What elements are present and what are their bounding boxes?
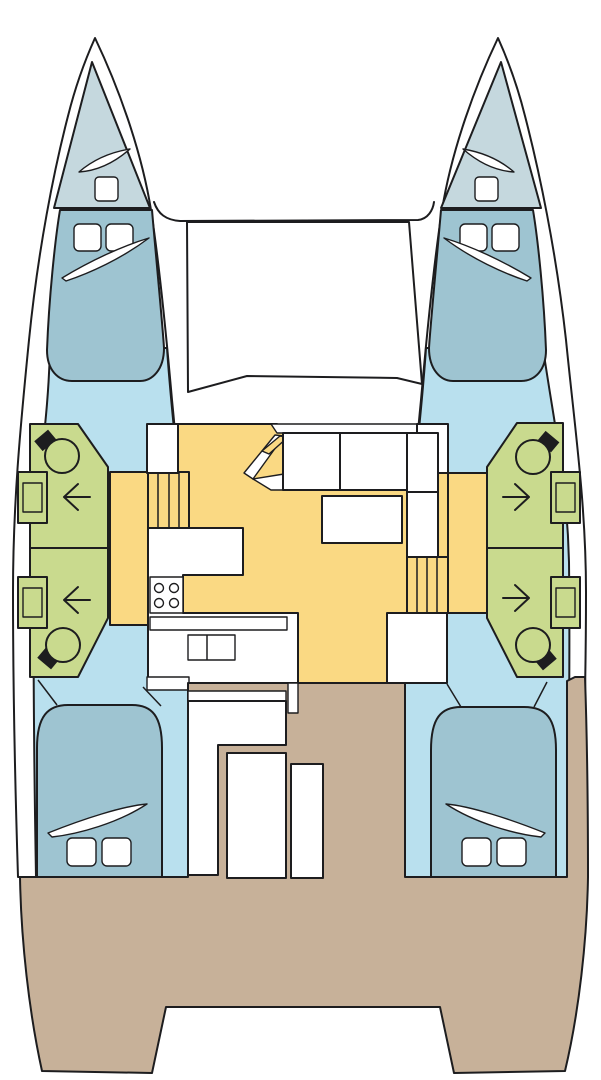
cockpit-table — [227, 753, 286, 878]
pillow-icon — [462, 838, 491, 866]
burner-icon — [170, 584, 179, 593]
saloon-table — [322, 496, 402, 543]
cockpit-bench — [291, 764, 323, 878]
toilet-icon — [516, 628, 550, 662]
galley-sink-icon — [188, 635, 235, 660]
burner-icon — [155, 599, 164, 608]
burner-icon — [170, 599, 179, 608]
pillow-icon — [102, 838, 131, 866]
pillow-icon — [492, 224, 519, 251]
crossbeam-line — [154, 202, 434, 221]
pillow-icon — [74, 224, 101, 251]
catamaran-layout-diagram — [0, 0, 601, 1080]
pillow-icon — [497, 838, 526, 866]
stove-icon — [150, 577, 183, 613]
sofa-side — [407, 433, 438, 557]
layout-svg — [0, 0, 601, 1080]
toilet-icon — [516, 440, 550, 474]
burner-icon — [155, 584, 164, 593]
trampoline — [187, 222, 422, 392]
starboard-corridor — [448, 473, 487, 613]
starboard-aft-berth — [431, 707, 556, 877]
port-front-locker — [147, 424, 178, 473]
nav-station-block — [387, 613, 447, 683]
port-aft-landing — [147, 677, 189, 690]
saloon-door-threshold — [288, 683, 298, 713]
port-aft-berth — [37, 705, 162, 877]
toilet-icon — [46, 628, 80, 662]
port-deck-hatch-icon — [95, 177, 118, 201]
port-heads — [18, 424, 108, 677]
pillow-icon — [67, 838, 96, 866]
cockpit-seat-back — [188, 691, 286, 701]
toilet-icon — [45, 439, 79, 473]
starboard-deck-hatch-icon — [475, 177, 498, 201]
port-companionway-steps — [148, 472, 189, 528]
worktop-edge — [150, 617, 287, 630]
sofa-front — [283, 433, 407, 490]
saloon-floor-aft — [298, 613, 387, 683]
port-corridor — [110, 472, 148, 625]
starboard-companionway-steps — [407, 557, 448, 613]
